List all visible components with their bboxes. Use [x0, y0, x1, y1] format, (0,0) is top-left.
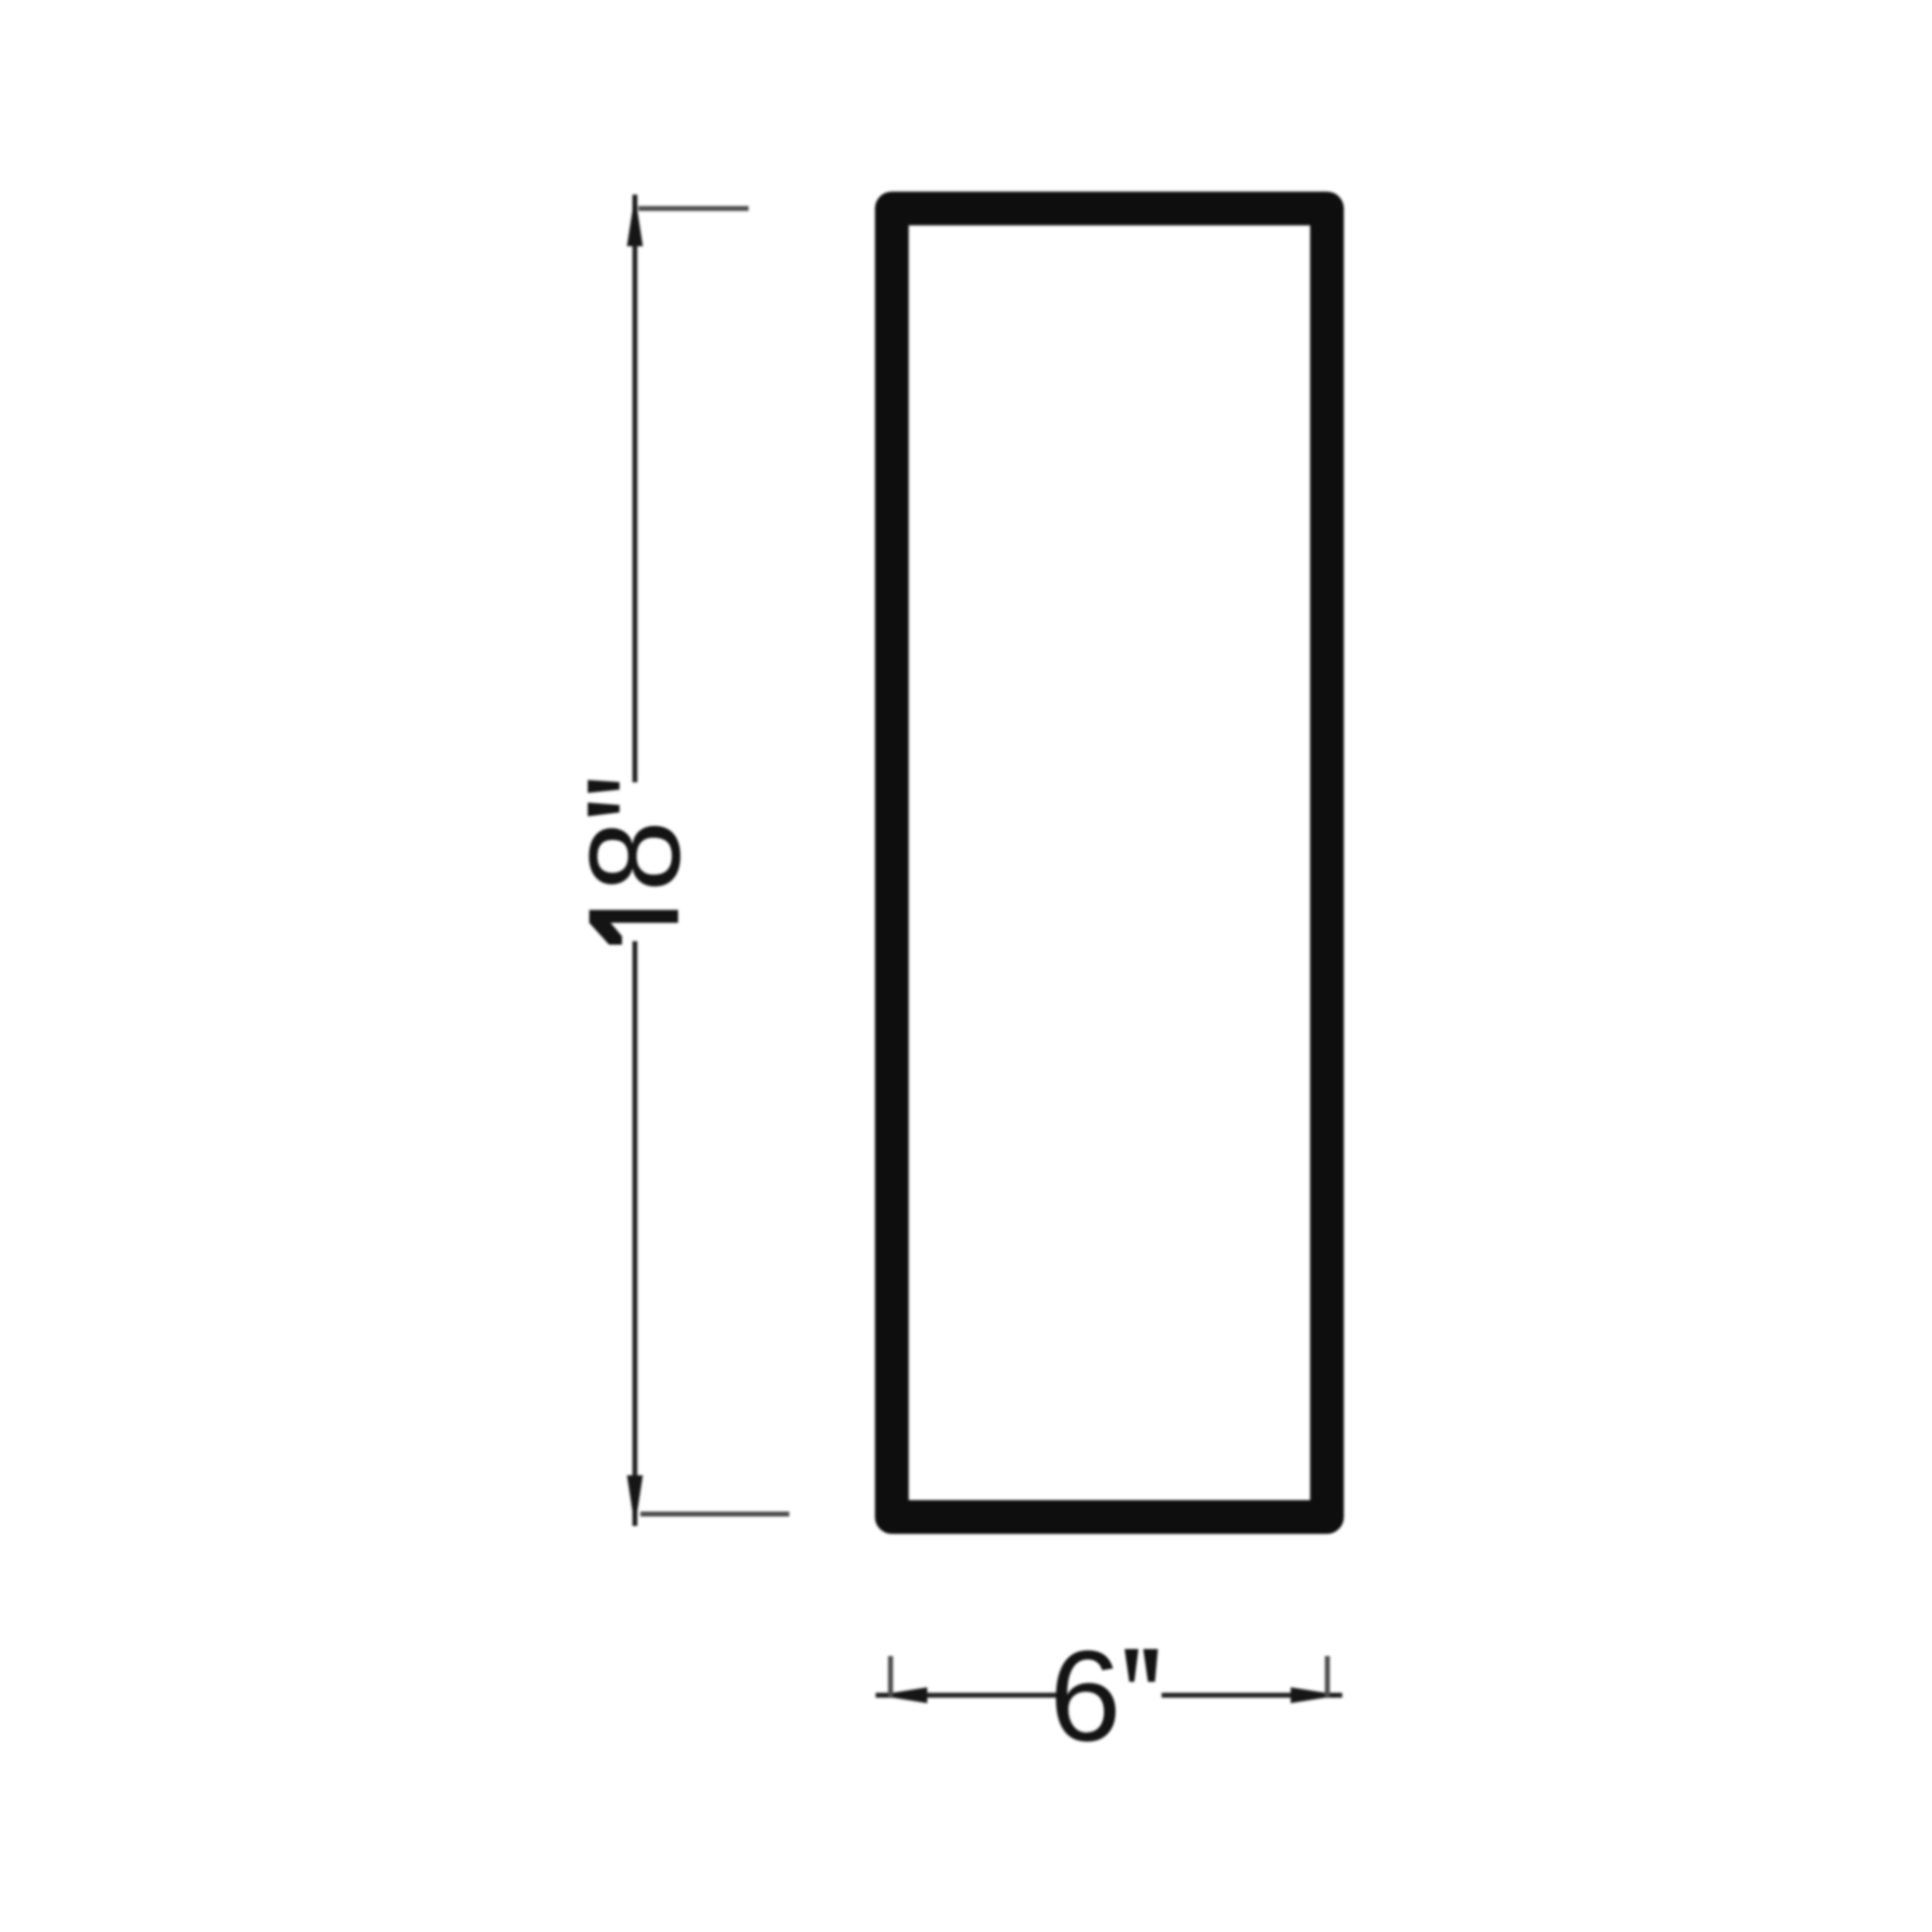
svg-text:8: 8	[562, 820, 707, 892]
svg-text:6: 6	[1049, 1623, 1121, 1768]
